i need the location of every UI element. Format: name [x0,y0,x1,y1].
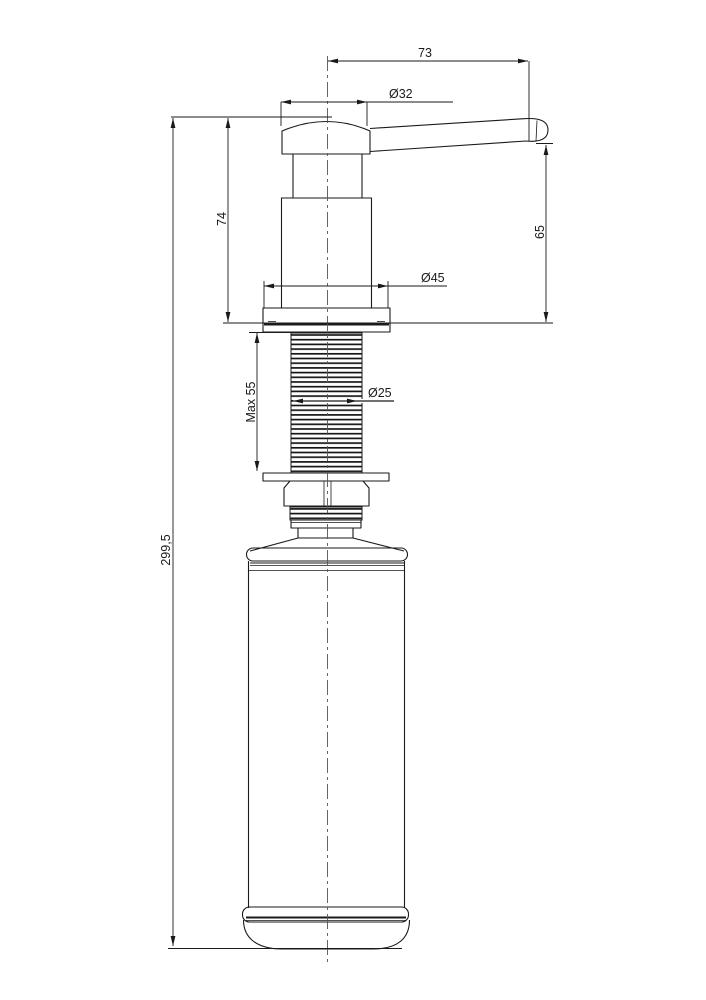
pump-knob [282,122,370,155]
dim-overall-height: 299,5 [159,118,175,946]
bottle-top-bead [247,548,408,561]
spout-tip-face [536,121,537,142]
dimension-annotations: 73 Ø32 74 65 [159,46,553,949]
technical-drawing: 73 Ø32 74 65 [0,0,706,1000]
dim-label-overall-height: 299,5 [159,534,173,565]
dim-arrow-d32-left [281,100,291,105]
dim-arrow-73-right [518,59,528,64]
lower-thread [290,507,362,520]
dim-flange-diameter: Ø45 [264,271,447,308]
washer [263,473,389,481]
dim-arrow-2995-top [171,118,176,128]
dim-label-max-mounting-thickness: Max 55 [244,381,258,422]
dim-label-thread-diameter: Ø25 [368,386,392,400]
dim-label-knob-diameter: Ø32 [389,87,413,101]
dim-max-mounting-thickness: Max 55 [244,333,291,472]
dim-arrow-74-bottom [226,312,231,322]
bottle-shoulder-left [250,538,298,551]
dim-arrow-74-top [226,118,231,128]
dim-label-flange-diameter: Ø45 [421,271,445,285]
dim-label-spout-reach: 73 [418,46,432,60]
dim-knob-diameter: Ø32 [281,87,453,126]
dim-label-head-height: 74 [215,212,229,226]
mounting-hardware [263,333,389,538]
drawing-page: 73 Ø32 74 65 [0,0,706,1000]
dim-arrow-d45-right [378,284,388,289]
dim-spout-clearance: 65 [533,144,553,323]
pump-body [282,198,372,308]
dim-arrow-max55-top [255,333,260,343]
bottle-bottom-bead [243,907,409,922]
dim-arrow-65-bottom [544,312,549,322]
spout-lever [370,119,548,152]
dim-head-height: 74 [215,118,230,322]
dim-label-spout-clearance: 65 [533,225,547,239]
bottle-stem [298,528,353,538]
dispenser-pump-head [263,119,548,332]
mounting-flange [263,308,390,332]
bottle-bottom-bowl [244,920,410,949]
hex-nut [284,481,369,506]
bottle-shoulder-right [353,538,404,551]
collar-ring [291,520,361,528]
dim-arrow-65-top [544,145,549,155]
bottle [243,538,410,949]
dim-arrow-2995-bottom [171,936,176,946]
dim-arrow-d45-left [264,284,274,289]
dim-arrow-max55-bottom [255,461,260,471]
dim-arrow-73-left [328,59,338,64]
dim-arrow-d32-right [357,100,367,105]
